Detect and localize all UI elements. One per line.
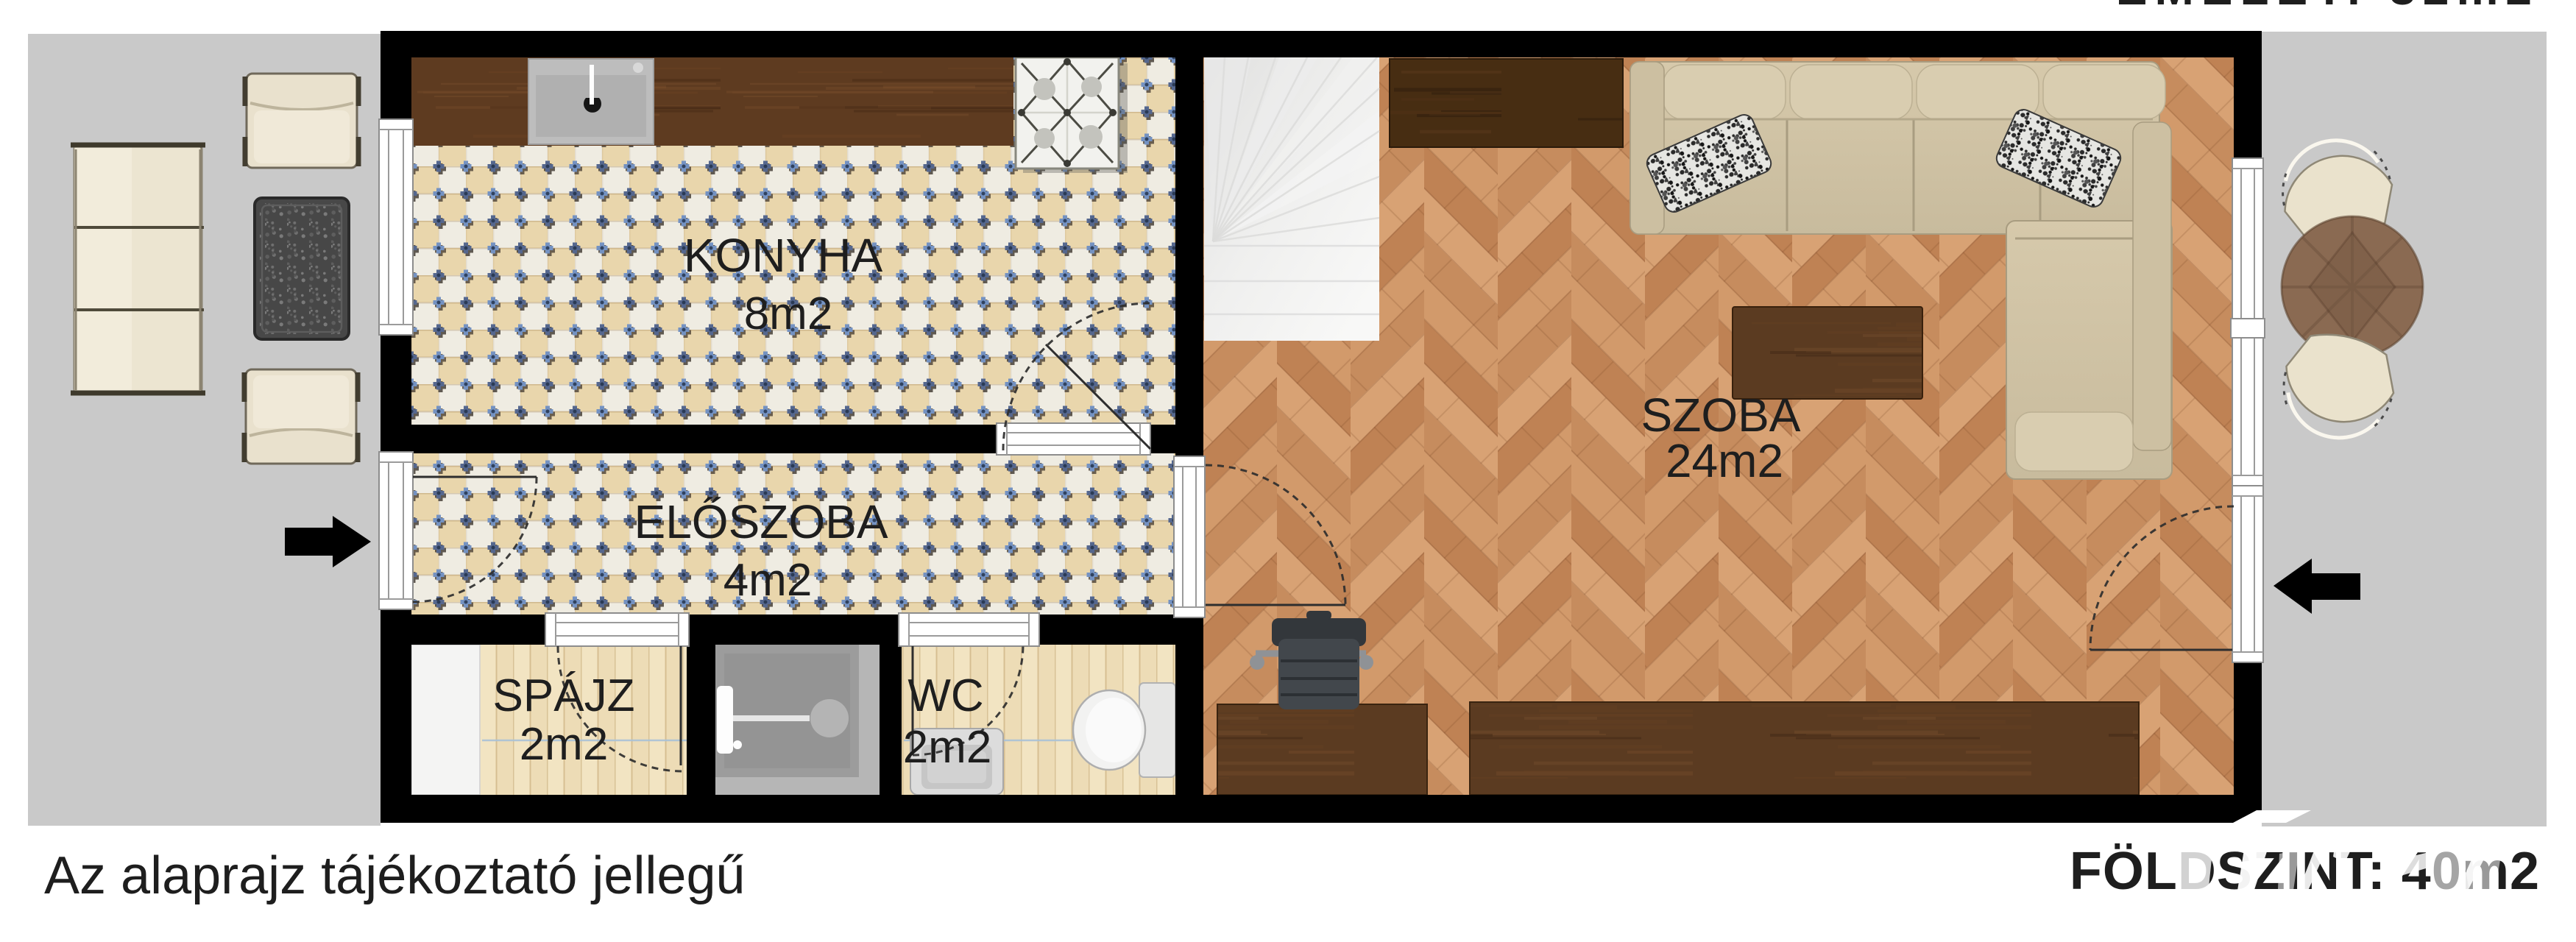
svg-text:24m2: 24m2	[1666, 434, 1783, 487]
svg-text:2m2: 2m2	[903, 722, 992, 773]
svg-text:KONYHA: KONYHA	[684, 229, 883, 282]
svg-text:EMELET: 32m2: EMELET: 32m2	[2116, 0, 2539, 15]
svg-text:2m2: 2m2	[520, 719, 609, 770]
svg-text:SPÁJZ: SPÁJZ	[493, 670, 635, 721]
svg-text:WC: WC	[907, 670, 983, 721]
svg-text:4m2: 4m2	[723, 555, 813, 606]
svg-text:ELŐSZOBA: ELŐSZOBA	[634, 495, 888, 548]
svg-text:8m2: 8m2	[744, 288, 833, 339]
svg-text:Az alaprajz tájékoztató jelleg: Az alaprajz tájékoztató jellegű	[44, 846, 746, 905]
